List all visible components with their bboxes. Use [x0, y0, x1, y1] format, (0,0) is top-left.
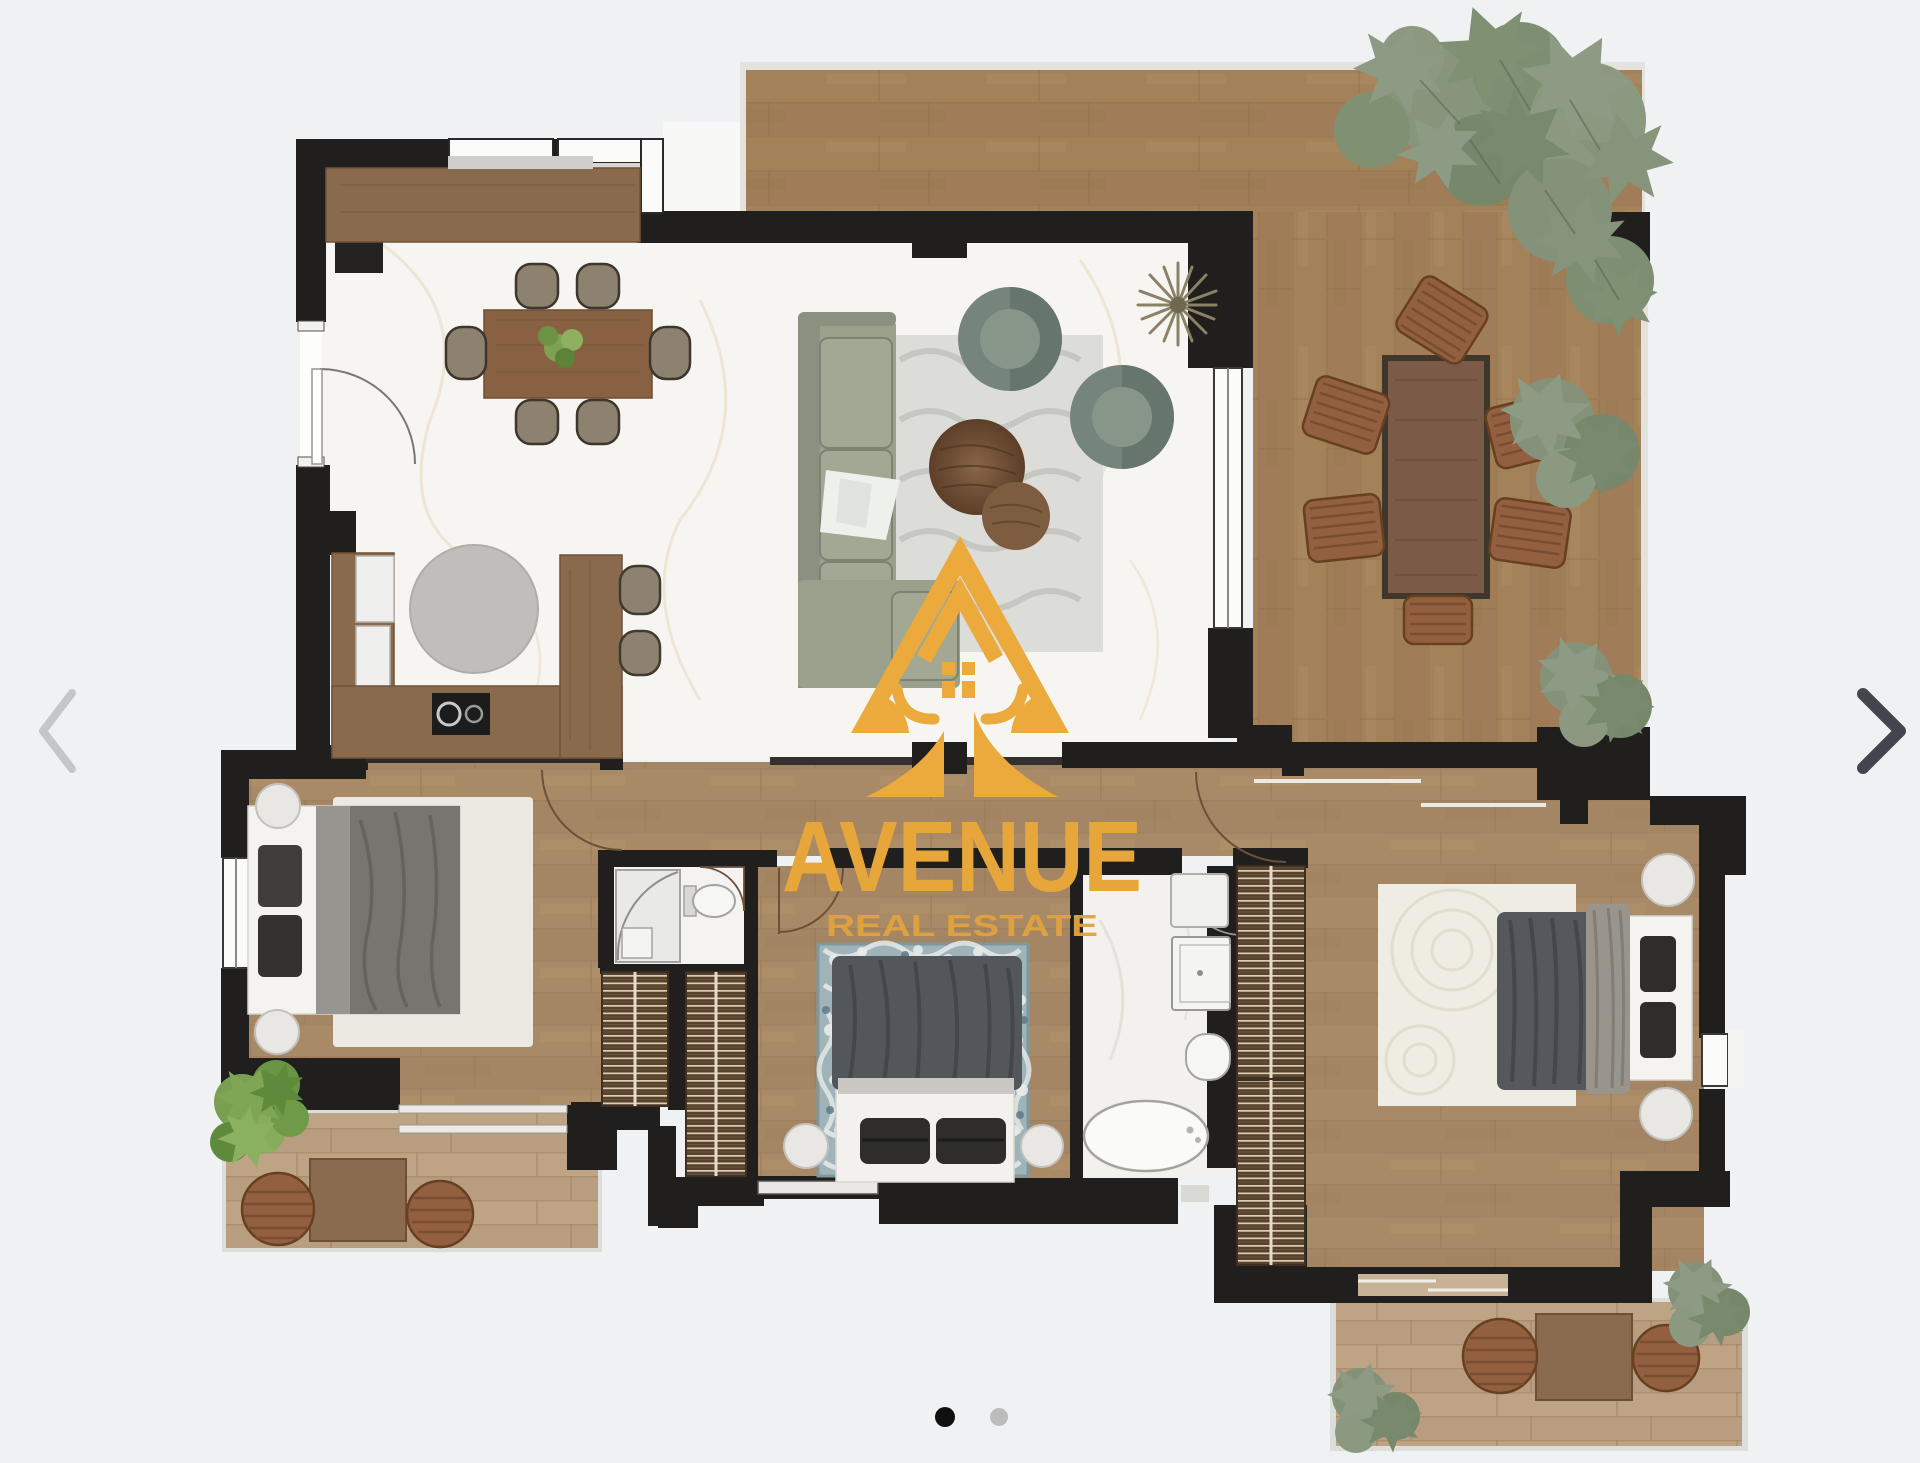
svg-text:AVENUE: AVENUE — [782, 801, 1142, 913]
svg-text:REAL ESTATE: REAL ESTATE — [826, 908, 1098, 943]
